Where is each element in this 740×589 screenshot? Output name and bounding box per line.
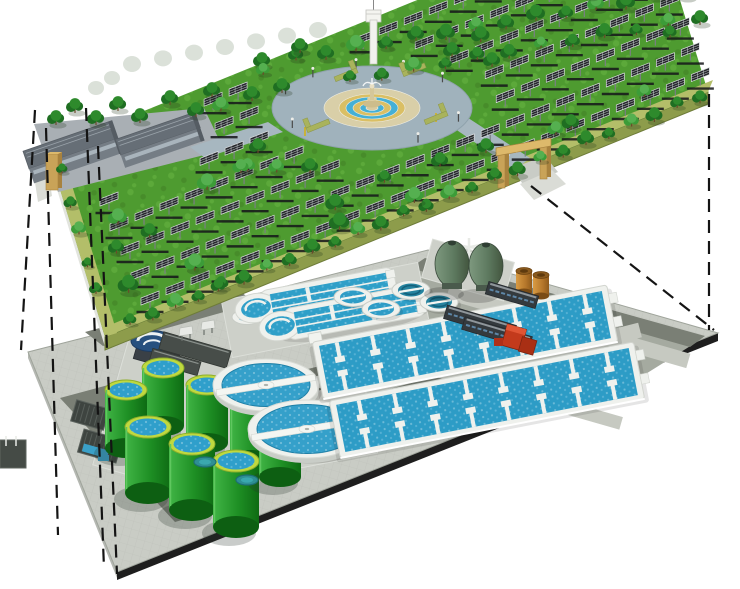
- tree: [87, 110, 107, 128]
- small-round-pad: [236, 475, 258, 485]
- small-round-pad: [194, 457, 216, 467]
- tree: [109, 96, 129, 114]
- tree: [691, 10, 711, 28]
- tree: [291, 38, 311, 56]
- projection-line: [21, 110, 35, 350]
- edge-structure: [0, 436, 26, 468]
- solar-park-over-underground-treatment-plant: [0, 0, 740, 589]
- tree: [66, 98, 86, 116]
- scene-3d-cutaway-illustration: [0, 0, 740, 589]
- tree: [161, 90, 181, 108]
- red-box: [494, 338, 503, 346]
- tree: [47, 110, 67, 128]
